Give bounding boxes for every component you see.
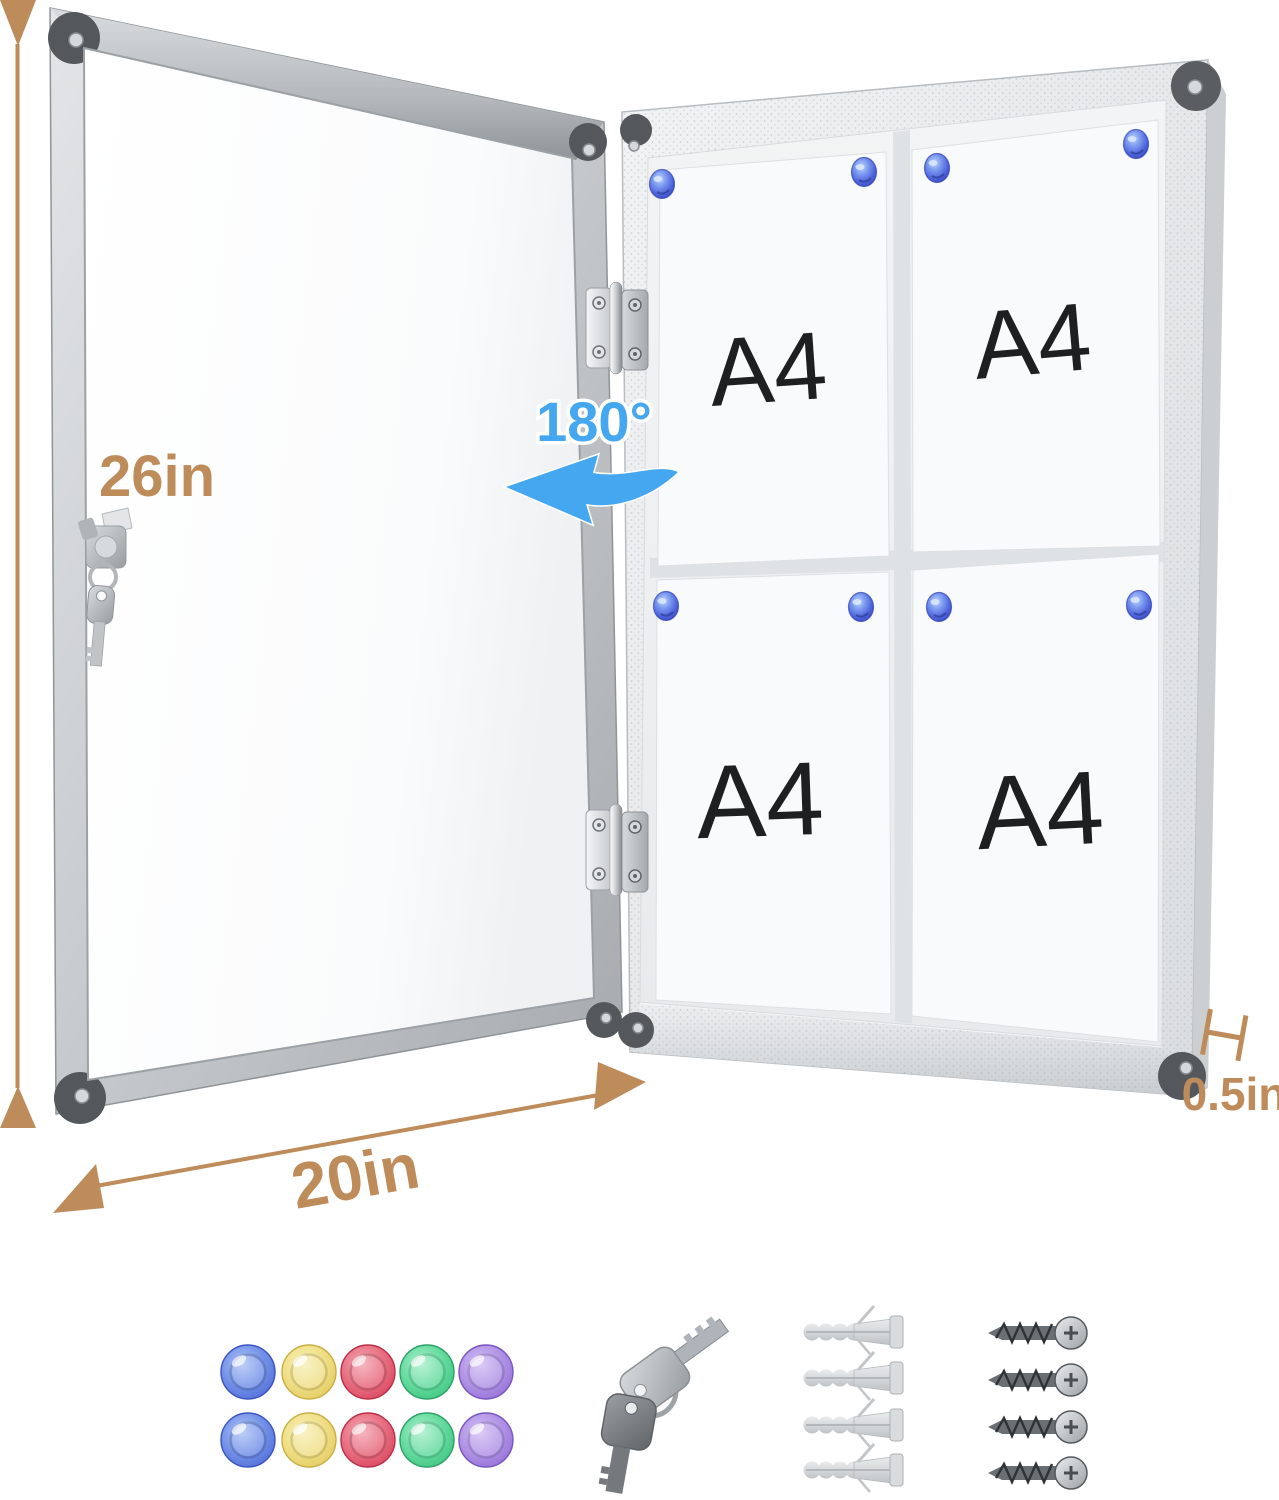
accessories (221, 1306, 1087, 1497)
depth-label: 0.5in (1182, 1068, 1279, 1120)
height-arrow-bottom-icon (0, 1086, 36, 1128)
paper-label: A4 (969, 283, 1095, 400)
width-arrow-left-icon (53, 1164, 104, 1213)
product-diagram-svg: A4 A4 A4 A4 (0, 0, 1279, 1500)
board: A4 A4 A4 A4 (618, 60, 1226, 1100)
board-magnet-icon (1127, 591, 1152, 620)
hinge-bottom-icon (586, 804, 648, 896)
screw-icon (988, 1364, 1087, 1396)
board-magnet-icon (1124, 130, 1149, 159)
accessory-magnet-icon (459, 1345, 513, 1399)
keys-icon (592, 1310, 740, 1498)
paper-label: A4 (706, 312, 831, 427)
height-arrow-top-icon (0, 0, 36, 46)
screw-icon (988, 1411, 1087, 1443)
paper-a4: A4 (912, 120, 1160, 552)
width-arrow-right-icon (594, 1062, 646, 1110)
wall-anchor-icon (804, 1444, 904, 1492)
board-magnet-icon (849, 593, 874, 622)
swing-angle-label: 180° (536, 390, 652, 453)
board-magnet-icon (650, 170, 675, 199)
door-panel (84, 48, 594, 1080)
board-magnet-icon (925, 154, 950, 183)
screw-icon (988, 1317, 1087, 1349)
height-label: 26in (99, 444, 215, 509)
board-magnet-icon (852, 158, 877, 187)
key-lower (592, 1392, 658, 1497)
accessory-magnet-icon (400, 1413, 454, 1467)
accessory-magnet-icon (282, 1345, 336, 1399)
accessory-magnet-icon (400, 1345, 454, 1399)
wall-anchor-icon (804, 1306, 904, 1354)
paper-label: A4 (973, 750, 1106, 872)
width-label: 20in (286, 1129, 425, 1222)
board-divider-vertical (893, 130, 912, 1024)
paper-a4: A4 (912, 554, 1159, 1042)
screw-icon (988, 1457, 1087, 1489)
accessory-magnet-icon (221, 1345, 275, 1399)
product-diagram: A4 A4 A4 A4 (0, 0, 1279, 1500)
accessory-magnet-icon (341, 1345, 395, 1399)
accessory-magnet-icon (459, 1413, 513, 1467)
paper-label: A4 (694, 741, 825, 861)
door (48, 8, 622, 1124)
paper-a4: A4 (656, 572, 891, 1014)
accessory-magnet-icon (221, 1413, 275, 1467)
accessory-magnet-icon (341, 1413, 395, 1467)
wall-anchor-icon (804, 1399, 904, 1447)
accessory-magnet-icon (282, 1413, 336, 1467)
hinge-top-icon (586, 282, 648, 374)
wall-anchor-icon (804, 1352, 904, 1400)
paper-a4: A4 (658, 152, 889, 566)
board-magnet-icon (654, 592, 679, 621)
depth-bracket-icon (1202, 1009, 1245, 1061)
board-magnet-icon (927, 593, 952, 622)
